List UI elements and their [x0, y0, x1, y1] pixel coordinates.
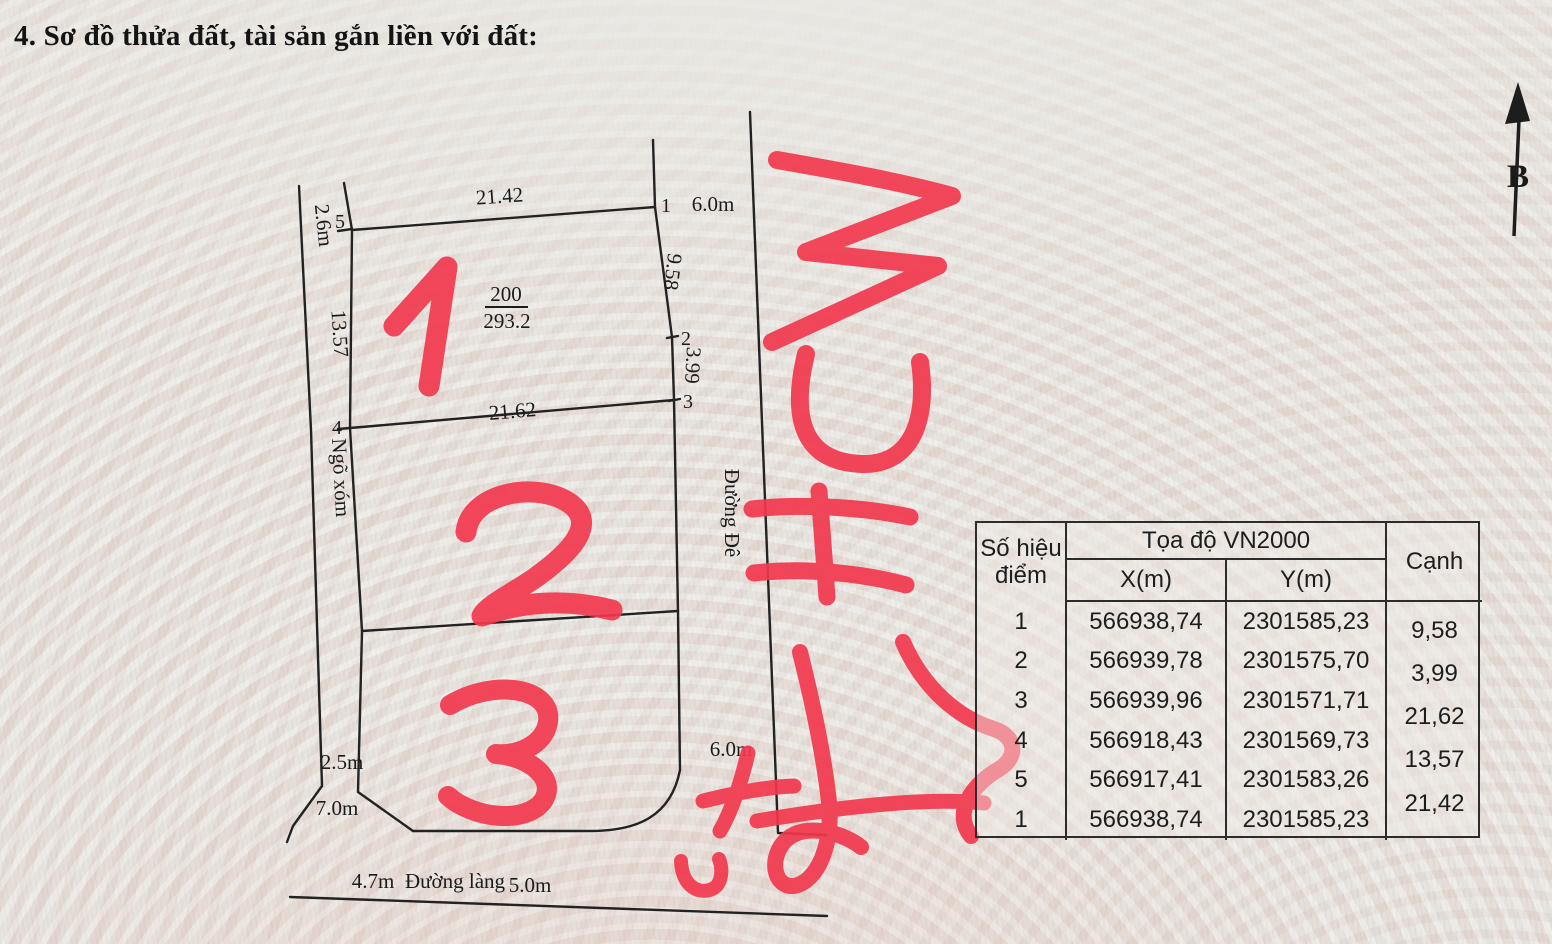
table-edge-value: 9,58: [1411, 617, 1458, 645]
table-header-point: Số hiệu điểm: [977, 523, 1067, 602]
table-cell-point: 2: [977, 642, 1067, 682]
red-scribble-connector: [757, 801, 984, 821]
dim-left-label: 13.57: [326, 309, 353, 358]
table-cell-y: 2301569,73: [1227, 721, 1387, 761]
point-label-4: 4: [332, 417, 342, 439]
red-letter-m: [772, 160, 952, 342]
north-arrow-head: [1505, 82, 1530, 124]
village-road-line: [290, 897, 827, 916]
table-edge-value: 21,62: [1404, 703, 1464, 731]
red-letter-c: [800, 354, 922, 464]
parcel-label: 200 293.2: [483, 282, 530, 333]
north-arrow: B: [1505, 82, 1530, 236]
dim-right-upper-label: 9.58: [659, 252, 687, 291]
coordinate-table: Số hiệu điểm Tọa độ VN2000 Cạnh X(m) Y(m…: [975, 521, 1480, 838]
table-header-edge: Cạnh: [1387, 523, 1482, 602]
parcel-north-boundary: [352, 207, 655, 230]
land-certificate-page: 4. Sơ đồ thửa đất, tài sản gắn liền với …: [0, 0, 1552, 944]
table-cell-y: 2301575,70: [1227, 642, 1387, 682]
dim-middle-label: 21.62: [488, 397, 537, 425]
alley-width-bottom-label: 2.5m: [321, 750, 364, 774]
table-edge-value: 21,42: [1404, 790, 1464, 818]
north-label: B: [1507, 159, 1529, 195]
parcel-east-boundary: [653, 140, 680, 770]
red-scribble-cross-h: [703, 786, 794, 801]
table-header-coords: Tọa độ VN2000: [1067, 523, 1387, 560]
red-mark-1: [394, 267, 447, 386]
alley-name-label: Ngõ xóm: [327, 438, 355, 518]
point-label-1: 1: [661, 195, 671, 217]
table-header-x: X(m): [1067, 560, 1227, 602]
parcel-number-label: 200: [490, 282, 522, 306]
alley-width-top-label: 2.6m: [310, 203, 338, 248]
table-cell-y: 2301585,23: [1227, 800, 1387, 840]
red-mark-2: [466, 492, 612, 616]
point-label-2: 2: [681, 328, 691, 350]
bottom-diagonal-label: 7.0m: [316, 796, 359, 820]
table-cell-y: 2301585,23: [1227, 602, 1387, 642]
point-label-3: 3: [683, 391, 693, 413]
table-cell-y: 2301571,71: [1227, 681, 1387, 721]
table-cell-point: 4: [977, 721, 1067, 761]
red-letter-h-bar1: [752, 506, 910, 517]
table-edge-value: 3,99: [1411, 660, 1458, 688]
road-right-width-top-label: 6.0m: [692, 192, 735, 216]
red-scribble-loop1: [775, 652, 861, 886]
table-header-y: Y(m): [1227, 560, 1387, 602]
table-cell-x: 566917,41: [1067, 760, 1227, 800]
table-edge-value: 13,57: [1404, 746, 1464, 774]
table-cell-x: 566938,74: [1067, 800, 1227, 840]
table-cell-point: 1: [977, 602, 1067, 642]
table-cell-point: 5: [977, 760, 1067, 800]
table-cell-x: 566938,74: [1067, 602, 1227, 642]
table-cell-x: 566939,78: [1067, 642, 1227, 682]
table-cell-point: 3: [977, 681, 1067, 721]
road-bottom-right-width-label: 5.0m: [509, 873, 552, 897]
dim-right-lower-label: 3.99: [680, 346, 706, 384]
road-right-name-label: Đường Đê: [720, 469, 744, 557]
table-cell-y: 2301583,26: [1227, 760, 1387, 800]
road-bottom-name-label: Đường làng: [405, 869, 506, 893]
table-cell-x: 566918,43: [1067, 721, 1227, 761]
red-script-hcm: [752, 160, 952, 597]
alley-west-line: [287, 186, 322, 842]
red-scribble-u: [681, 859, 721, 891]
table-edge-column: 9,58 3,99 21,62 13,57 21,42: [1387, 602, 1482, 840]
red-script-signature: [681, 642, 1012, 891]
road-bottom-left-width-label: 4.7m: [352, 869, 395, 893]
table-cell-x: 566939,96: [1067, 681, 1227, 721]
red-letter-h-cross: [819, 491, 827, 597]
red-mark-3: [448, 690, 548, 817]
dim-top-label: 21.42: [475, 182, 524, 209]
table-cell-point: 1: [977, 800, 1067, 840]
parcel-area-label: 293.2: [483, 309, 530, 333]
tick-p2: [667, 336, 678, 338]
point-label-5: 5: [335, 211, 345, 233]
